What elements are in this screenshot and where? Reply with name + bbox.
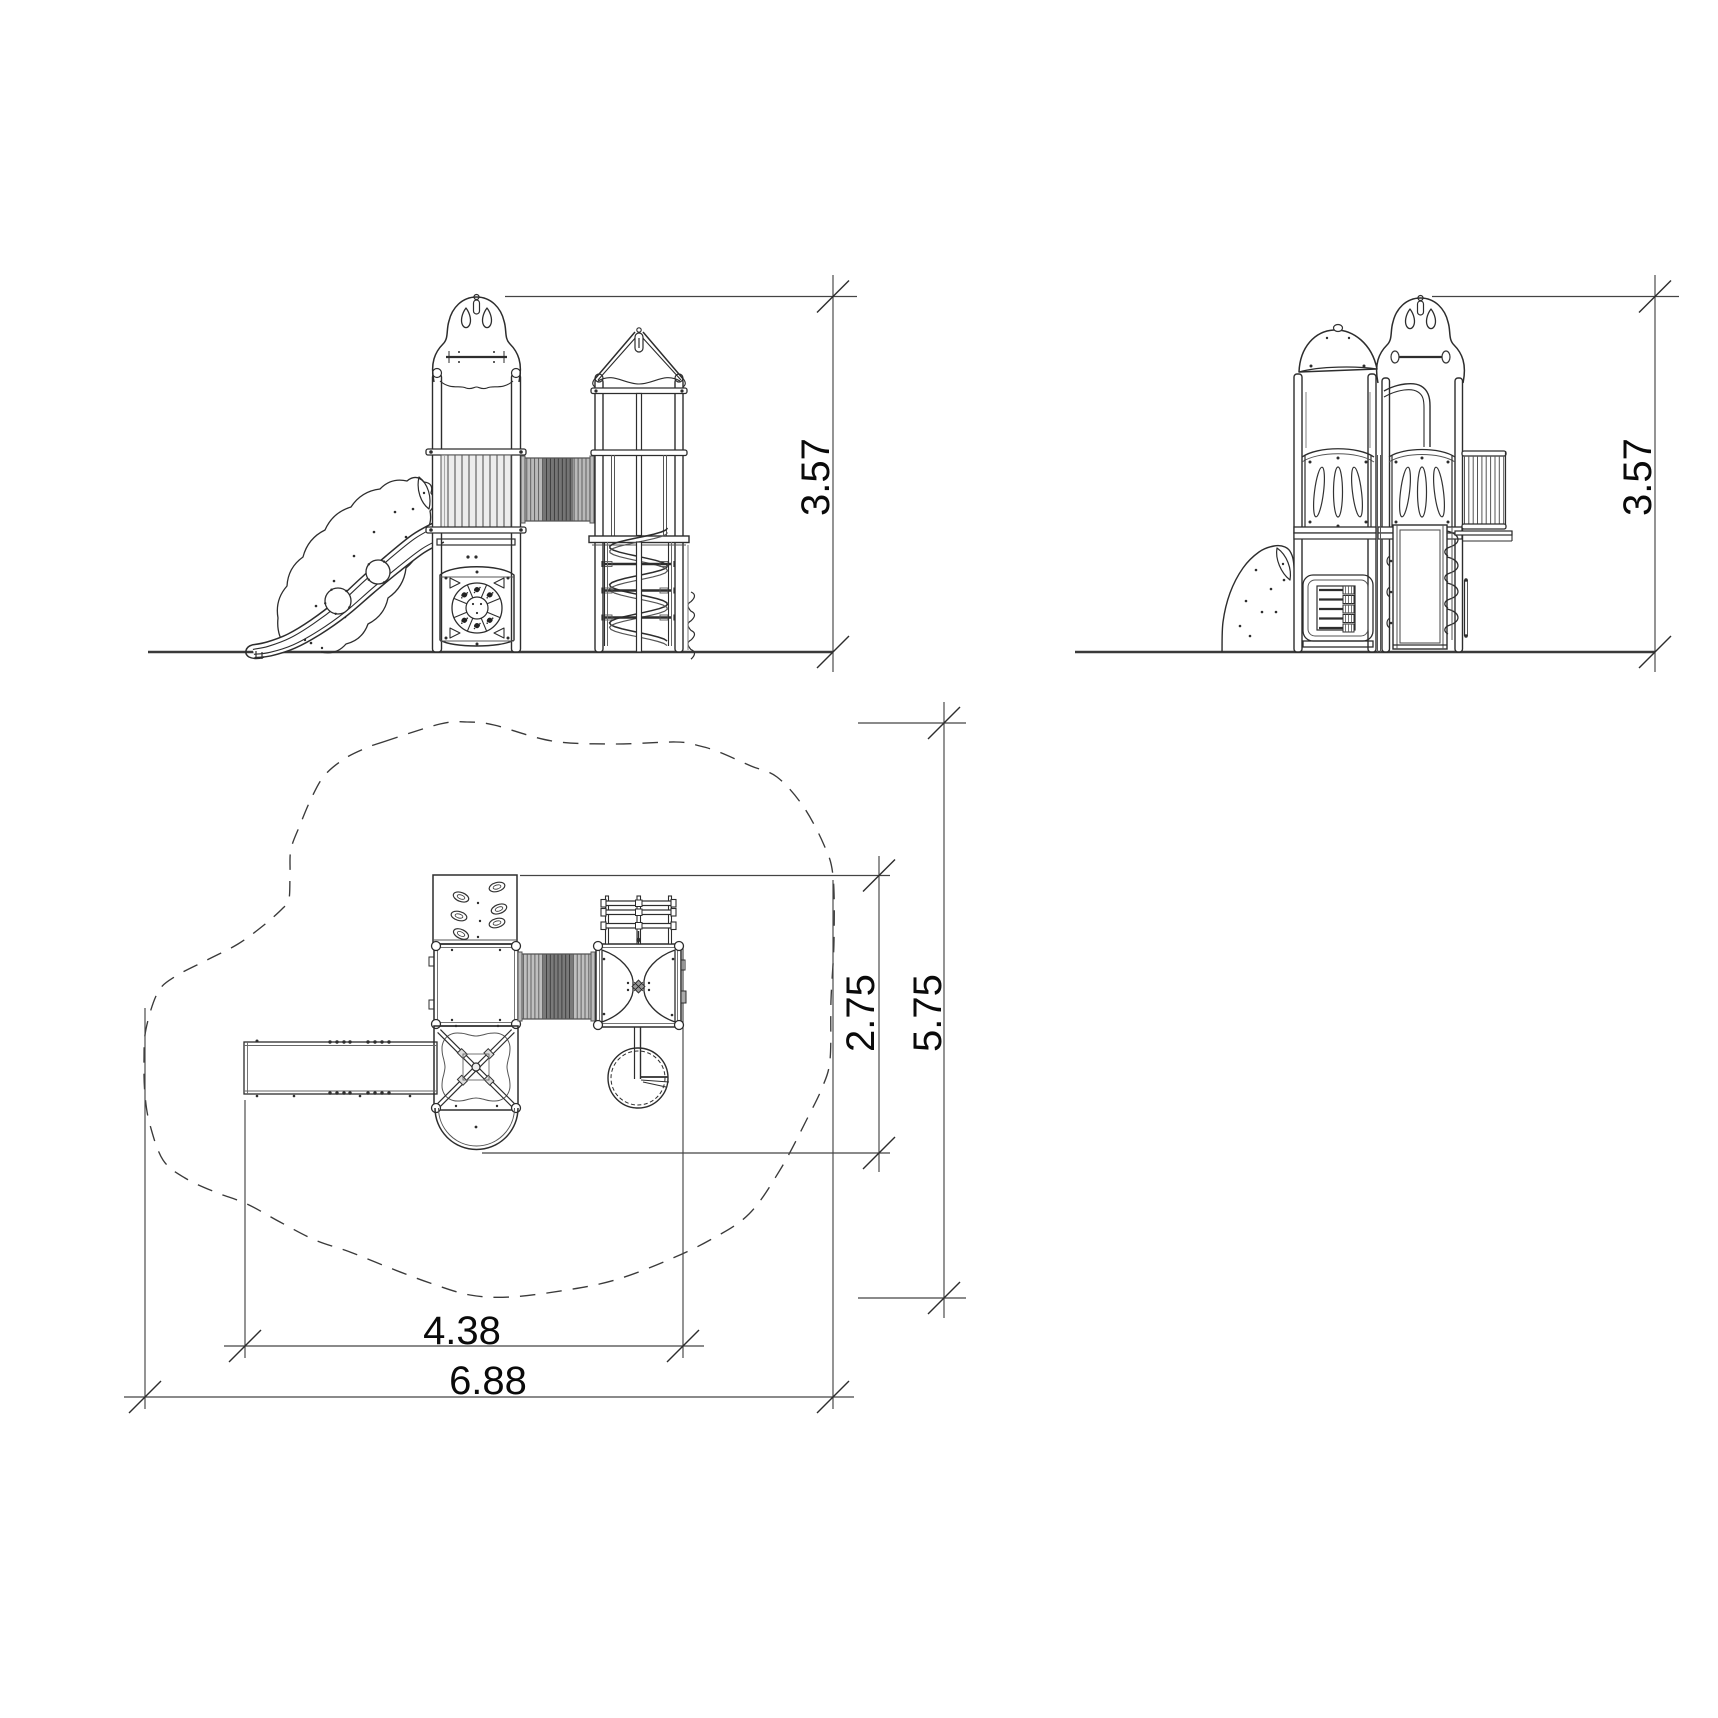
svg-text:6.88: 6.88 xyxy=(449,1359,527,1403)
svg-text:3.57: 3.57 xyxy=(1616,438,1660,516)
svg-text:3.57: 3.57 xyxy=(794,438,838,516)
svg-text:2.75: 2.75 xyxy=(839,974,883,1052)
svg-text:5.75: 5.75 xyxy=(906,974,950,1052)
svg-text:4.38: 4.38 xyxy=(423,1309,501,1353)
